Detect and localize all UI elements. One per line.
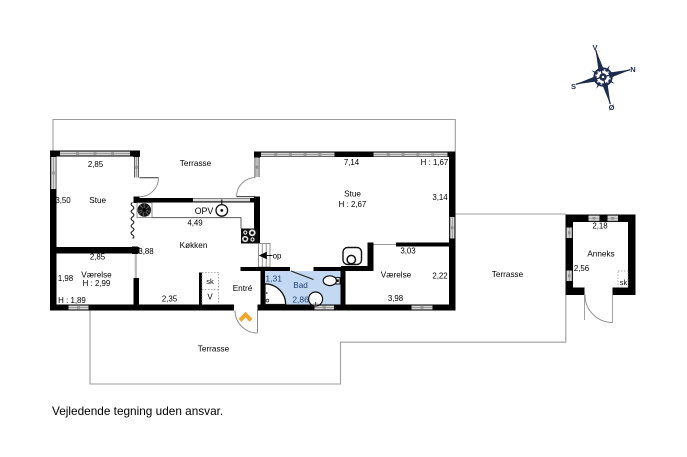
svg-text:Anneks: Anneks (587, 250, 614, 259)
svg-text:7,14: 7,14 (344, 158, 360, 167)
svg-text:Terrasse: Terrasse (180, 159, 212, 168)
svg-text:2,85: 2,85 (90, 253, 106, 262)
svg-text:H : 1,67: H : 1,67 (421, 158, 449, 167)
svg-text:Stue: Stue (344, 190, 361, 199)
svg-text:V: V (592, 43, 597, 52)
svg-text:Værelse: Værelse (381, 271, 412, 280)
svg-text:Bad: Bad (293, 281, 308, 290)
svg-text:Stue: Stue (89, 196, 106, 205)
svg-text:Terrasse: Terrasse (198, 345, 230, 354)
svg-text:N: N (630, 65, 635, 74)
svg-text:Køkken: Køkken (180, 241, 208, 250)
svg-text:1,31: 1,31 (265, 273, 282, 283)
svg-text:3,03: 3,03 (400, 247, 416, 256)
svg-text:H : 1,89: H : 1,89 (58, 296, 86, 305)
svg-text:V: V (207, 293, 213, 302)
svg-text:Vejledende tegning uden ansvar: Vejledende tegning uden ansvar. (52, 404, 223, 418)
svg-text:4,49: 4,49 (187, 219, 203, 228)
svg-text:Entré: Entré (233, 284, 253, 293)
svg-text:3,88: 3,88 (138, 247, 154, 256)
svg-text:S: S (571, 82, 576, 91)
svg-text:1,98: 1,98 (58, 274, 74, 283)
svg-text:sk: sk (620, 278, 628, 287)
svg-text:op: op (273, 251, 282, 260)
svg-text:H : 2,99: H : 2,99 (83, 279, 111, 288)
svg-text:2,35: 2,35 (162, 295, 178, 304)
svg-text:Ø: Ø (609, 103, 615, 112)
svg-text:Terrasse: Terrasse (492, 270, 524, 279)
svg-text:3,14: 3,14 (432, 193, 448, 202)
svg-text:2,86: 2,86 (292, 295, 309, 305)
svg-text:2,85: 2,85 (88, 160, 104, 169)
svg-text:OPV: OPV (195, 206, 214, 216)
svg-text:2,18: 2,18 (592, 222, 608, 231)
svg-text:2,56: 2,56 (574, 264, 590, 273)
svg-text:3,50: 3,50 (55, 196, 71, 205)
svg-text:2,22: 2,22 (432, 272, 447, 281)
svg-text:3,98: 3,98 (388, 294, 404, 303)
svg-text:H : 2,67: H : 2,67 (339, 200, 367, 209)
svg-text:sk: sk (206, 277, 214, 286)
